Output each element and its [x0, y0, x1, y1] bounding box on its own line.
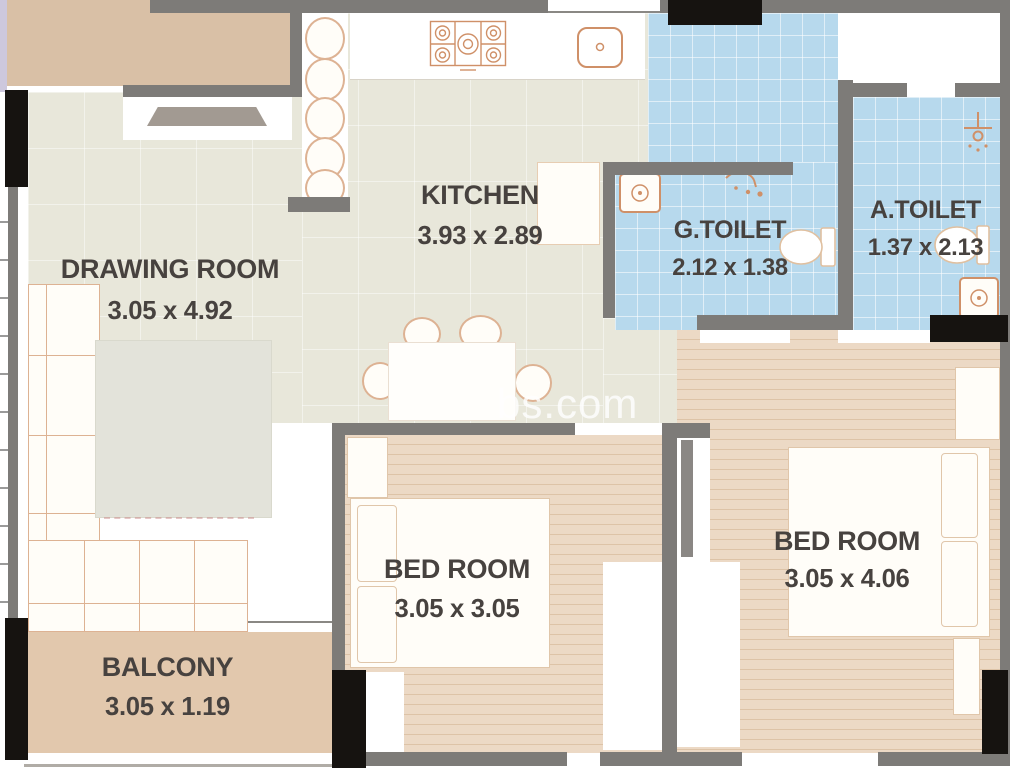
wall — [150, 0, 548, 13]
wall — [332, 423, 345, 673]
sofa-seam — [29, 435, 99, 436]
entrance-door-icon — [147, 107, 267, 126]
sofa-seam — [194, 541, 195, 631]
utility-circle-icon — [305, 17, 345, 60]
sink-icon — [576, 26, 624, 69]
room-dims: 2.12 x 1.38 — [645, 256, 815, 280]
side-table — [953, 638, 980, 715]
wall — [603, 162, 615, 318]
floor-g-toilet-upper — [648, 13, 838, 175]
exterior-edge — [0, 0, 7, 92]
a-toilet-upper-niche — [853, 13, 1000, 83]
kitchen-window — [548, 0, 668, 13]
sofa-back-line — [46, 285, 47, 583]
bedroom-2-shelf — [700, 330, 790, 343]
room-dims: 3.05 x 1.19 — [80, 695, 255, 721]
wall — [1000, 13, 1010, 753]
room-name: BED ROOM — [762, 528, 932, 555]
faded-mark — [104, 517, 254, 519]
wall — [603, 162, 793, 175]
shower-icon — [958, 108, 998, 156]
utility-circle-icon — [305, 97, 345, 140]
room-dims: 3.05 x 4.06 — [762, 567, 932, 593]
wall — [8, 185, 18, 623]
wall — [662, 423, 710, 438]
rug — [95, 340, 272, 518]
room-dims: 3.05 x 4.92 — [55, 299, 285, 325]
wall — [878, 752, 1010, 766]
room-dims: 3.93 x 2.89 — [390, 224, 570, 250]
room-name: BED ROOM — [367, 556, 547, 583]
a-toilet-entry-gap — [838, 330, 930, 343]
room-label-kitchen: KITCHEN 3.93 x 2.89 — [390, 182, 570, 250]
bedroom-1-wardrobe-niche — [603, 562, 662, 750]
washbasin-icon — [618, 172, 662, 214]
room-name: BALCONY — [80, 654, 255, 681]
room-label-balcony: BALCONY 3.05 x 1.19 — [80, 654, 255, 721]
wall — [123, 85, 302, 97]
stove-icon — [429, 20, 507, 74]
sofa-seam — [84, 541, 85, 631]
utility-circle-icon — [305, 58, 345, 101]
pillow — [941, 453, 978, 538]
room-name: G.TOILET — [645, 218, 815, 243]
room-label-drawing-room: DRAWING ROOM 3.05 x 4.92 — [55, 256, 285, 325]
wall — [662, 423, 677, 753]
room-name: DRAWING ROOM — [55, 256, 285, 283]
column — [668, 0, 762, 25]
sofa — [28, 540, 248, 632]
room-name: KITCHEN — [390, 182, 570, 209]
wall — [362, 752, 567, 766]
washbasin-icon — [958, 276, 1000, 320]
column — [5, 90, 28, 187]
sofa — [28, 284, 100, 584]
bedroom-1-corner-niche — [366, 672, 404, 752]
wall — [288, 197, 350, 212]
column — [5, 618, 28, 760]
left-window-ticks — [0, 185, 8, 623]
room-dims: 3.05 x 3.05 — [367, 597, 547, 623]
sofa-seam — [139, 541, 140, 631]
balcony-railing — [24, 764, 336, 767]
column — [930, 315, 1008, 342]
sofa-seam — [29, 513, 99, 514]
wall — [845, 83, 907, 97]
wall — [600, 752, 742, 766]
room-name: A.TOILET — [848, 198, 1003, 223]
floor-plan: bs.com — [0, 0, 1010, 768]
bedroom-2-wardrobe-niche — [677, 562, 740, 747]
room-label-bedroom-2: BED ROOM 3.05 x 4.06 — [762, 528, 932, 593]
room-dims: 1.37 x 2.13 — [848, 236, 1003, 260]
sofa-seam — [29, 355, 99, 356]
wardrobe — [955, 367, 1000, 440]
sofa-front-line — [29, 603, 247, 604]
room-label-a-toilet: A.TOILET 1.37 x 2.13 — [848, 198, 1003, 260]
column — [332, 670, 366, 768]
wall — [697, 315, 838, 330]
dresser — [347, 437, 388, 498]
door-leaf-icon — [681, 440, 693, 557]
room-label-bedroom-1: BED ROOM 3.05 x 3.05 — [367, 556, 547, 623]
pillow — [941, 541, 978, 627]
room-label-g-toilet: G.TOILET 2.12 x 1.38 — [645, 218, 815, 280]
watermark: bs.com — [497, 383, 638, 425]
column — [982, 670, 1008, 754]
wall — [290, 0, 302, 97]
